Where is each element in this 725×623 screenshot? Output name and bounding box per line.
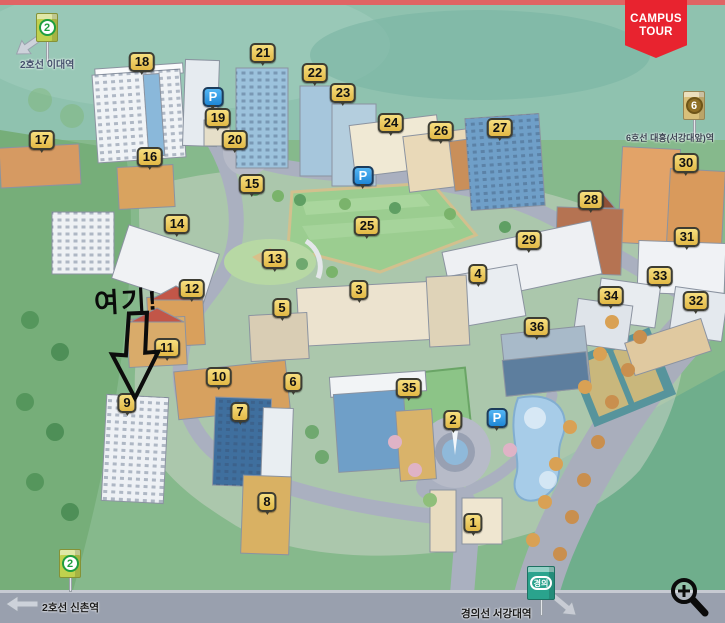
building-marker-12[interactable]: 12 — [179, 279, 205, 299]
sign-pole — [69, 578, 72, 592]
building-marker-27[interactable]: 27 — [487, 118, 513, 138]
line2-sign-box: 2 — [36, 13, 58, 42]
line6-badge: 6 — [686, 97, 703, 114]
building-marker-34[interactable]: 34 — [598, 286, 624, 306]
building-marker-20[interactable]: 20 — [222, 130, 248, 150]
building-marker-18[interactable]: 18 — [129, 52, 155, 72]
gyeongui-sign-box: 경의 — [527, 566, 555, 600]
sign-pole — [540, 600, 543, 616]
building-marker-22[interactable]: 22 — [302, 63, 328, 83]
parking-marker-3[interactable]: P — [487, 408, 508, 428]
building-marker-7[interactable]: 7 — [230, 402, 249, 422]
station-label-daeheung: 6호선 대흥(서강대앞)역 — [626, 131, 714, 144]
building-marker-28[interactable]: 28 — [578, 190, 604, 210]
building-marker-19[interactable]: 19 — [205, 108, 231, 128]
building-marker-31[interactable]: 31 — [674, 227, 700, 247]
station-sign-ewha: 2 — [36, 13, 58, 62]
building-marker-15[interactable]: 15 — [239, 174, 265, 194]
building-marker-1[interactable]: 1 — [463, 513, 482, 533]
building-marker-21[interactable]: 21 — [250, 43, 276, 63]
building-marker-24[interactable]: 24 — [378, 113, 404, 133]
building-marker-26[interactable]: 26 — [428, 121, 454, 141]
building-marker-30[interactable]: 30 — [673, 153, 699, 173]
building-marker-33[interactable]: 33 — [647, 266, 673, 286]
top-road-strip — [0, 0, 725, 5]
building-marker-14[interactable]: 14 — [164, 214, 190, 234]
building-marker-23[interactable]: 23 — [330, 83, 356, 103]
parking-marker-2[interactable]: P — [353, 166, 374, 186]
line6-sign-box: 6 — [683, 91, 705, 120]
building-marker-29[interactable]: 29 — [516, 230, 542, 250]
building-marker-35[interactable]: 35 — [396, 378, 422, 398]
building-marker-25[interactable]: 25 — [354, 216, 380, 236]
line2-sign-box: 2 — [59, 549, 81, 578]
building-marker-2[interactable]: 2 — [443, 410, 462, 430]
parking-marker-1[interactable]: P — [203, 87, 224, 107]
building-marker-4[interactable]: 4 — [468, 264, 487, 284]
building-marker-8[interactable]: 8 — [257, 492, 276, 512]
campus-tour-line2: TOUR — [625, 26, 687, 39]
building-marker-36[interactable]: 36 — [524, 317, 550, 337]
line2-badge: 2 — [39, 19, 56, 36]
building-marker-5[interactable]: 5 — [272, 298, 291, 318]
station-label-ewha: 2호선 이대역 — [20, 56, 74, 71]
building-marker-3[interactable]: 3 — [349, 280, 368, 300]
building-marker-32[interactable]: 32 — [683, 291, 709, 311]
building-marker-17[interactable]: 17 — [29, 130, 55, 150]
line2-badge: 2 — [62, 555, 79, 572]
here-annotation-arrow — [100, 310, 170, 405]
building-marker-16[interactable]: 16 — [137, 147, 163, 167]
building-marker-6[interactable]: 6 — [283, 372, 302, 392]
station-sign-sinchon: 2 — [59, 549, 81, 592]
campus-tour-line1: CAMPUS — [625, 13, 687, 26]
building-marker-10[interactable]: 10 — [206, 367, 232, 387]
gyeongui-badge: 경의 — [530, 576, 553, 590]
zoom-in-icon[interactable] — [666, 574, 714, 620]
station-label-gyeongui: 경의선 서강대역 — [461, 606, 532, 621]
building-marker-13[interactable]: 13 — [262, 249, 288, 269]
campus-map: 1234567891011121314151617181920212223242… — [0, 0, 725, 623]
station-label-sinchon: 2호선 신촌역 — [42, 600, 99, 615]
